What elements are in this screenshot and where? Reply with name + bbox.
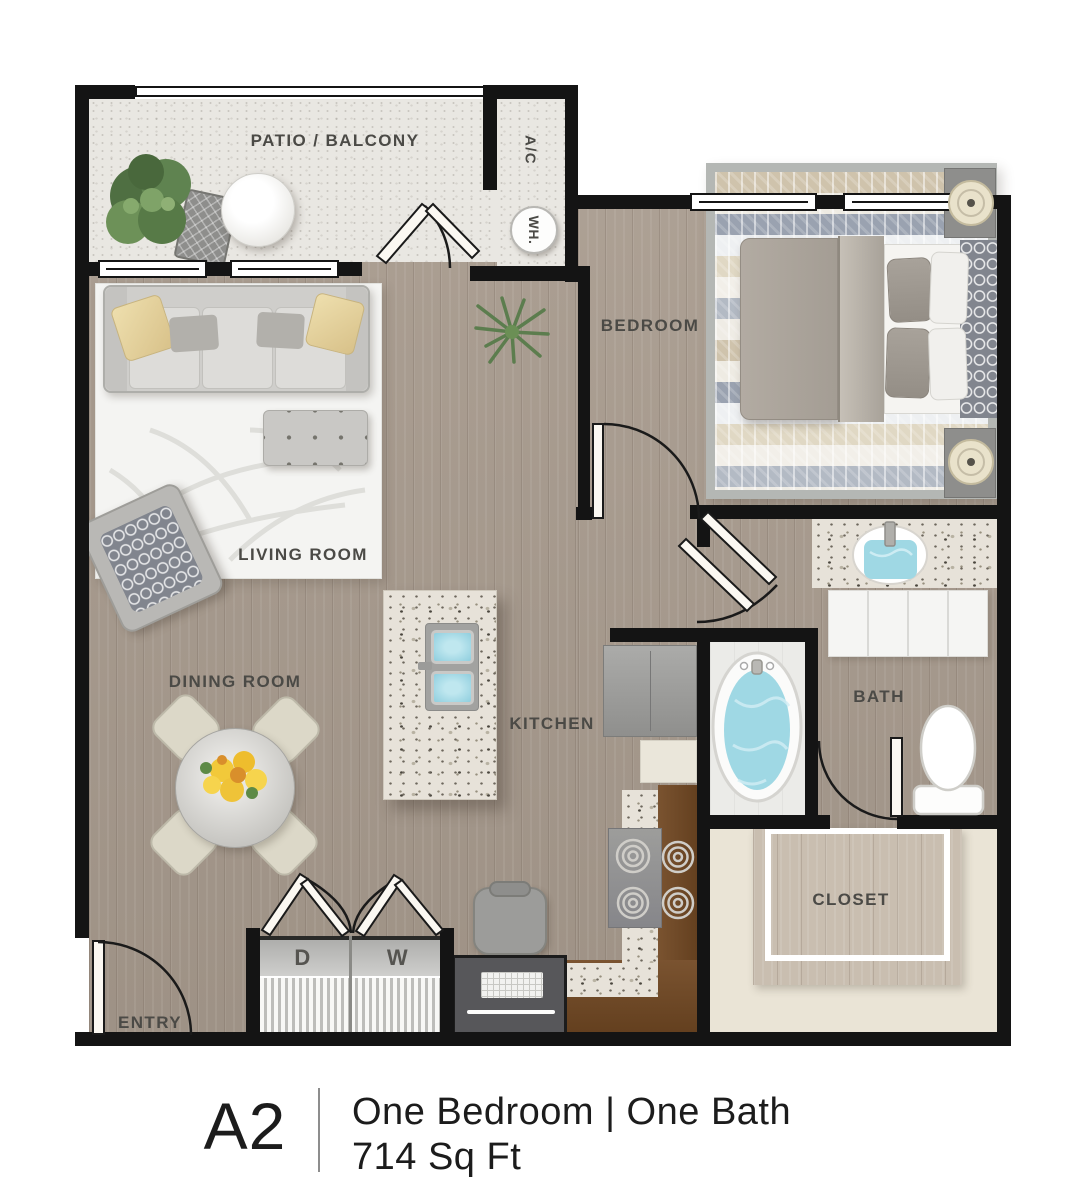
entry-door-leaf <box>92 940 105 1035</box>
wall-tub-top <box>700 628 818 642</box>
wall-tub-right <box>805 628 818 818</box>
washer-label: W <box>387 945 409 971</box>
wall-kitchen-bath <box>697 628 710 1032</box>
gray-pillow <box>256 312 305 349</box>
wall-bottom <box>75 1032 1011 1046</box>
patio-railing <box>135 86 487 97</box>
window-bedroom-left <box>690 193 817 211</box>
wall-patio-bottom-b <box>205 262 232 276</box>
window-patio-right <box>230 260 339 278</box>
wall-ac-top <box>483 85 578 99</box>
wall-left <box>75 85 89 938</box>
room-label-kitchen: KITCHEN <box>509 714 594 734</box>
bed-duvet <box>740 238 838 420</box>
room-label-dining: DINING ROOM <box>169 672 302 692</box>
window-mullion <box>852 201 951 203</box>
wall-patio-bottom-c <box>337 262 362 276</box>
window-mullion <box>238 268 330 270</box>
room-label-living: LIVING ROOM <box>238 545 368 565</box>
plan-code: A2 <box>180 1088 310 1164</box>
plan-description: One Bedroom | One Bath 714 Sq Ft <box>352 1090 791 1180</box>
desk <box>452 955 567 1035</box>
laundry-divider <box>349 936 352 1032</box>
wall-laundry-stub-left <box>246 928 260 1032</box>
caption-divider <box>318 1088 320 1172</box>
stove <box>608 828 662 928</box>
dining-table <box>175 728 295 848</box>
sink-faucet <box>418 662 432 670</box>
wall-ac-right <box>565 85 578 282</box>
bed-pillow-gray <box>885 327 931 398</box>
dryer-label: D <box>294 945 311 971</box>
wall-bath-closet-b <box>897 815 997 829</box>
bed-fold <box>838 236 884 422</box>
bath-vanity <box>812 519 997 588</box>
wall-ac-left <box>483 85 497 190</box>
window-bedroom-right <box>843 193 960 211</box>
desk-drawer-handle <box>467 1010 555 1014</box>
bedroom-door-leaf <box>592 423 604 519</box>
sink-basin <box>431 671 474 705</box>
room-label-ac: A/C <box>522 135 539 165</box>
water-heater: WH. <box>510 206 558 254</box>
plan-area: 714 Sq Ft <box>352 1135 791 1180</box>
wall-bedroom-door-stub <box>576 507 592 520</box>
counter-section <box>640 740 697 783</box>
bed-pillow-white <box>929 251 969 324</box>
window-mullion <box>106 268 198 270</box>
accent-chair-cushion <box>98 503 205 614</box>
floor-plan-canvas: D W <box>0 0 1083 1200</box>
wall-bedroom-top-c <box>958 195 997 209</box>
wall-bath-closet-a <box>697 815 830 829</box>
nightstand <box>944 428 996 498</box>
counter-granite-bottom <box>565 963 658 997</box>
patio-table <box>221 173 295 247</box>
desk-chair <box>473 887 547 955</box>
gray-pillow <box>169 314 219 352</box>
bed-pillow-white <box>928 327 968 400</box>
refrigerator <box>603 645 697 737</box>
plan-type: One Bedroom | One Bath <box>352 1090 791 1135</box>
wall-bedroom-top-a <box>578 195 692 209</box>
desk-chair-back <box>489 881 531 897</box>
wall-bath-entry-stub <box>697 519 710 547</box>
refrigerator-divider <box>650 651 651 730</box>
window-mullion <box>699 201 807 203</box>
room-label-bath: BATH <box>853 687 905 707</box>
room-label-patio: PATIO / BALCONY <box>251 131 420 151</box>
wall-laundry-stub-right <box>440 928 454 1032</box>
island-sink <box>425 623 479 711</box>
wall-bedroom-top-b <box>815 195 845 209</box>
wall-right <box>997 195 1011 1046</box>
wall-bedroom-left <box>578 277 590 520</box>
closet-door-leaf <box>890 737 903 817</box>
room-label-entry: ENTRY <box>118 1013 182 1033</box>
keyboard <box>481 972 543 998</box>
wall-kitchen-stub <box>610 628 710 642</box>
bed-pillow-gray <box>886 257 933 323</box>
water-heater-label: WH. <box>526 216 542 245</box>
room-label-closet: CLOSET <box>812 890 889 910</box>
wall-bedroom-bath <box>690 505 997 519</box>
bath-towel-panels <box>828 590 988 657</box>
room-label-bedroom: BEDROOM <box>601 316 700 336</box>
sink-basin <box>431 630 474 664</box>
window-patio-left <box>98 260 207 278</box>
ottoman <box>263 410 368 466</box>
wall-ac-bottom <box>470 266 590 281</box>
